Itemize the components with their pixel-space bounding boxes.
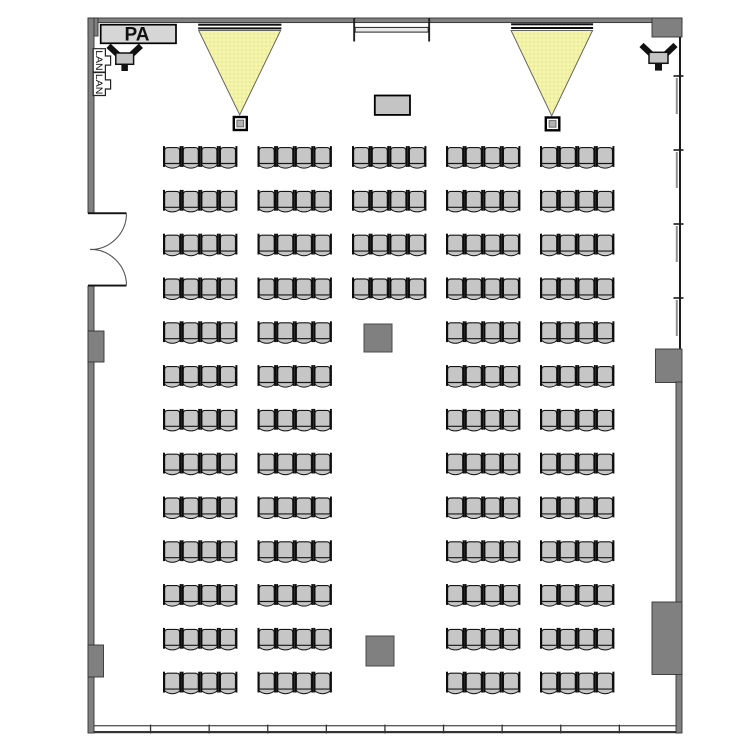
svg-text:PA: PA bbox=[125, 24, 150, 45]
svg-text:LAN: LAN bbox=[94, 74, 104, 94]
svg-text:LAN: LAN bbox=[94, 50, 104, 70]
